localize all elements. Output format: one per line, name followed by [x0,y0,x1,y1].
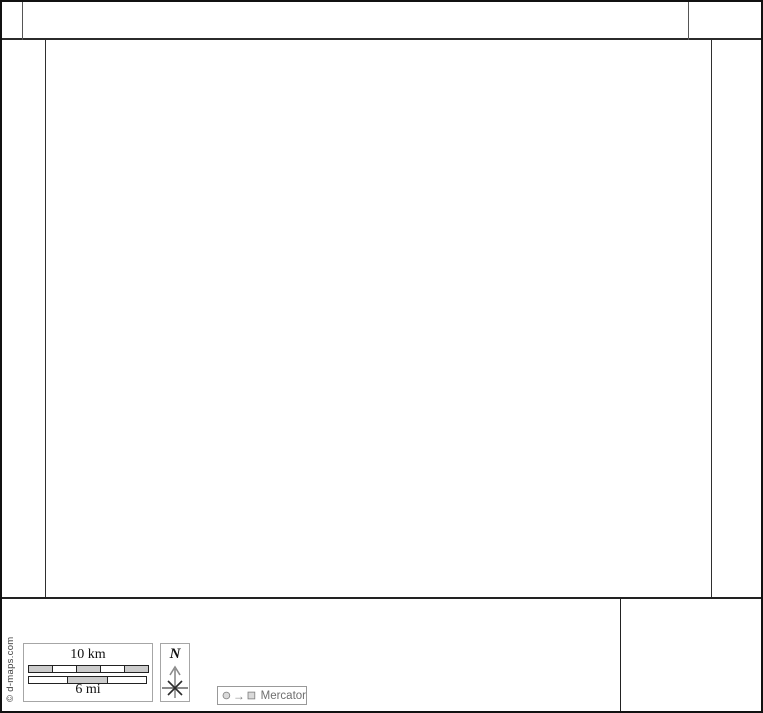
header-divider-right [688,0,689,40]
map-frame-right-line [711,40,712,597]
header-bar [0,0,763,40]
map-canvas [46,42,711,597]
header-divider-left [22,0,23,40]
map-template-page: © d-maps.com 10 km 6 mi N [0,0,763,713]
footer-separator-line [0,597,763,599]
north-compass-panel: N [160,643,190,702]
km-scale-segment [124,666,148,672]
projection-legend: → Mercator [217,686,307,705]
scale-km-ruler [28,665,149,673]
scale-bar-panel: 10 km 6 mi [23,643,153,702]
footer-corner-box [621,599,761,711]
circle-icon [222,689,231,702]
north-compass-icon [161,663,189,701]
km-scale-segment [52,666,76,672]
map-right-margin [712,42,763,597]
header-title-cell [23,0,688,40]
header-corner-cell [689,0,763,40]
copyright-text: © d-maps.com [5,636,16,702]
square-icon [247,689,256,702]
footer-divider-line [620,599,621,711]
km-scale-segment [29,666,52,672]
map-frame-left-line [45,40,46,597]
km-scale-segment [100,666,124,672]
km-scale-segment [76,666,100,672]
arrow-right-icon: → [233,690,245,702]
scale-km-label: 10 km [24,647,152,663]
north-label: N [161,646,189,663]
header-margin-cell [0,0,22,40]
projection-name: Mercator [261,690,306,702]
scale-mi-label: 6 mi [24,682,152,698]
